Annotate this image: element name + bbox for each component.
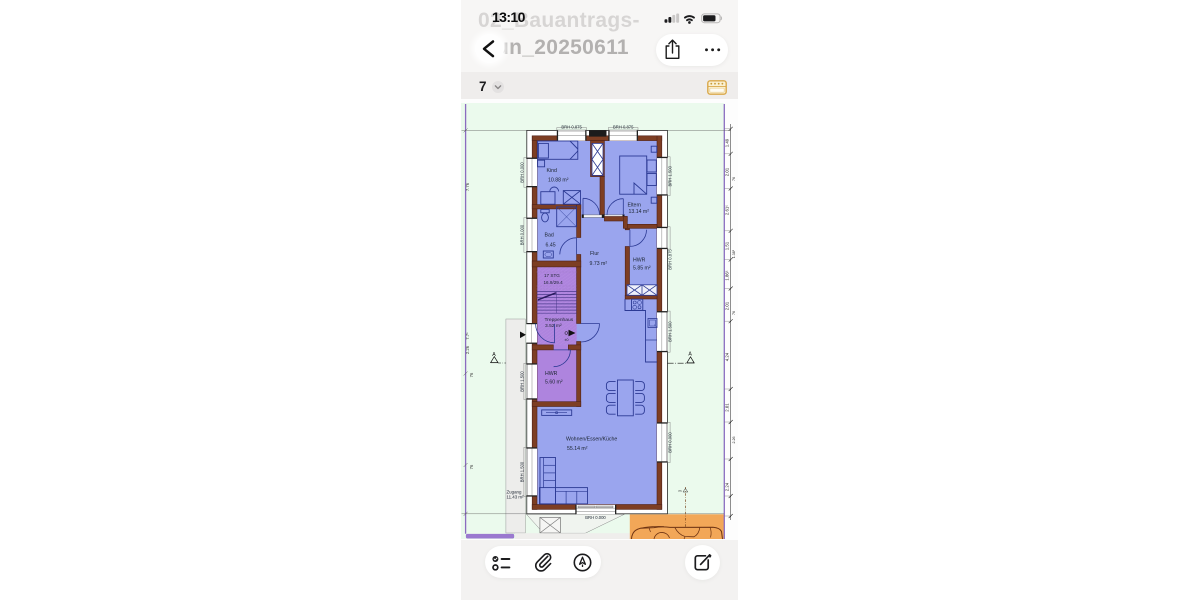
svg-text:BRH 1.500: BRH 1.500	[519, 371, 524, 392]
svg-text:Flur: Flur	[590, 251, 599, 257]
svg-text:HWR: HWR	[633, 258, 646, 264]
svg-text:2.61⁵: 2.61⁵	[725, 205, 730, 215]
svg-text:BRH 0.000: BRH 0.000	[519, 162, 524, 183]
svg-text:BRH 0.000: BRH 0.000	[519, 224, 524, 245]
svg-text:2.26: 2.26	[465, 345, 470, 354]
svg-text:1.86⁵: 1.86⁵	[725, 270, 730, 280]
svg-text:76: 76	[732, 177, 736, 181]
svg-text:m: m	[679, 489, 682, 493]
svg-text:76: 76	[732, 311, 736, 315]
svg-text:3.52 m²: 3.52 m²	[545, 323, 562, 329]
svg-text:13.14 m²: 13.14 m²	[629, 209, 650, 215]
svg-text:76: 76	[469, 372, 474, 377]
svg-text:BRH 0.875: BRH 0.875	[561, 125, 582, 130]
svg-text:2.01: 2.01	[725, 403, 730, 412]
svg-text:10.88 m²: 10.88 m²	[548, 178, 569, 184]
svg-text:BRH 0.875: BRH 0.875	[613, 125, 634, 130]
svg-text:Bad: Bad	[545, 233, 554, 239]
svg-text:16.9/29.4: 16.9/29.4	[544, 280, 564, 285]
svg-text:2.01: 2.01	[725, 301, 730, 310]
svg-text:17 STG: 17 STG	[544, 273, 560, 278]
svg-text:HWR: HWR	[545, 371, 558, 377]
svg-text:BRH 1.500: BRH 1.500	[667, 165, 672, 186]
svg-text:11.43 m²: 11.43 m²	[507, 495, 525, 500]
svg-text:BRH 0.875: BRH 0.875	[667, 249, 672, 270]
svg-text:4.24: 4.24	[725, 352, 730, 361]
svg-text:9.73 m²: 9.73 m²	[590, 261, 608, 267]
svg-text:1.38⁵: 1.38⁵	[732, 249, 736, 258]
svg-text:7.7⁵: 7.7⁵	[465, 332, 470, 340]
svg-text:1.51: 1.51	[725, 241, 730, 250]
svg-text:BRH 0.000: BRH 0.000	[667, 432, 672, 453]
svg-text:2.24: 2.24	[725, 482, 730, 491]
svg-text:Treppenhaus: Treppenhaus	[545, 317, 574, 323]
svg-text:BRH 1.500: BRH 1.500	[667, 321, 672, 342]
svg-text:76: 76	[469, 464, 474, 469]
svg-text:55.14 m²: 55.14 m²	[567, 446, 588, 452]
svg-text:±0: ±0	[565, 338, 569, 342]
svg-text:7.76: 7.76	[465, 182, 470, 191]
svg-text:5.85 m²: 5.85 m²	[633, 266, 651, 272]
svg-text:2.26: 2.26	[732, 437, 736, 444]
svg-text:1.49: 1.49	[725, 138, 730, 147]
svg-text:5.60 m²: 5.60 m²	[545, 380, 563, 386]
svg-text:BRH 0.000: BRH 0.000	[585, 515, 606, 520]
svg-text:Eltern: Eltern	[628, 203, 642, 209]
svg-text:Kind: Kind	[547, 168, 557, 174]
svg-text:6.45: 6.45	[546, 243, 556, 249]
svg-text:BRH 1.500: BRH 1.500	[519, 461, 524, 482]
svg-text:Wohnen/Essen/Küche: Wohnen/Essen/Küche	[566, 437, 617, 443]
svg-text:2.01: 2.01	[725, 167, 730, 176]
